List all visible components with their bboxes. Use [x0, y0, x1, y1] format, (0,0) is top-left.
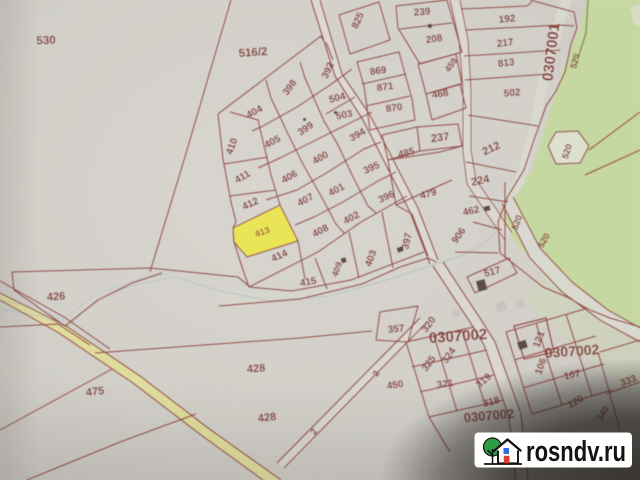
svg-text:rosndv.ru: rosndv.ru — [526, 436, 626, 468]
